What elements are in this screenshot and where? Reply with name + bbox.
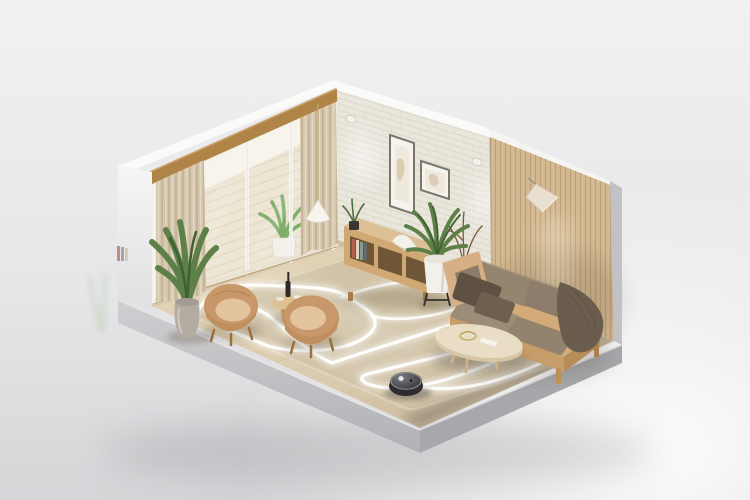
curtain-right	[300, 102, 338, 256]
lamp-pool	[538, 214, 574, 290]
sideboard-leg	[348, 292, 353, 301]
spotlight-pool-1	[346, 132, 378, 184]
outside-book-2	[121, 247, 124, 261]
robot-top	[390, 372, 422, 390]
picture-frame-tall: framed wall art	[390, 135, 414, 214]
wine-bottle	[286, 281, 291, 297]
sofa-leg-2	[556, 368, 561, 384]
left-wall-end-face	[118, 166, 152, 308]
wine-bottle-neck	[287, 272, 289, 282]
armchair1-seat	[216, 299, 251, 322]
robot-sensor	[410, 379, 412, 381]
scene-stage: Isometric cutaway living room with a rob…	[0, 0, 750, 500]
robot-button	[398, 376, 403, 381]
outside-book-3	[125, 248, 128, 261]
floor-plant-vase-rim	[175, 298, 199, 306]
armchair2-seat	[290, 306, 326, 330]
plate	[276, 297, 284, 301]
isometric-room-illustration: Isometric cutaway living room with a rob…	[0, 0, 750, 500]
outside-book-1	[117, 246, 120, 261]
